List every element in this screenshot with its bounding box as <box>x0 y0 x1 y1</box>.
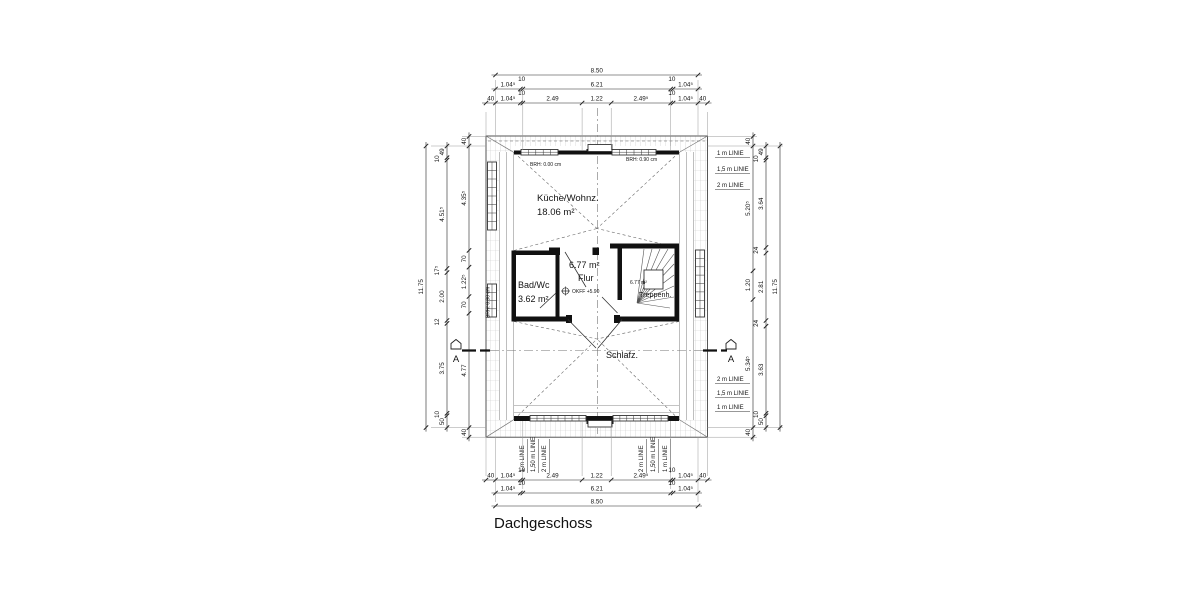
dim-value: 24 <box>753 319 760 327</box>
section-marker-right <box>726 340 736 350</box>
dim-value: 10 <box>668 467 676 474</box>
wall-stair-top <box>610 244 679 249</box>
dim-value: 4.35⁵ <box>461 190 468 205</box>
wall-pier <box>566 315 572 323</box>
dim-value: 10 <box>434 411 441 419</box>
dim-value: 10 <box>668 480 676 487</box>
room-name-flur: Flur <box>578 273 594 283</box>
wall-stair-left <box>618 248 623 300</box>
linie-label: 1,5 m LINIE <box>717 391 749 397</box>
dim-value: 8.50 <box>591 498 604 505</box>
room-area-flur: 6.77 m² <box>569 260 600 270</box>
dim-value: 40 <box>745 137 752 145</box>
wall-pier <box>614 315 620 323</box>
linie-label: 1,50 m LINIE <box>651 437 657 472</box>
dim-value: 5.20⁵ <box>745 201 752 216</box>
dim-value: 12 <box>434 318 441 326</box>
linie-label: 1,5 m LINIE <box>717 167 749 173</box>
linie-labels-bottom: 1 m LINIE 1,50 m LINIE 2 m LINIE 2 m LIN… <box>520 437 671 473</box>
dim-value: 50 <box>758 418 765 426</box>
dimension-chain: 11.75 <box>418 142 428 432</box>
dim-value: 40 <box>699 472 707 479</box>
dim-value: 10 <box>518 76 526 83</box>
section-marker-left <box>451 340 461 350</box>
dim-value: 40 <box>699 95 707 102</box>
dim-value: 1.04⁵ <box>501 81 516 88</box>
dim-value: 10 <box>753 155 760 163</box>
dim-value: 10 <box>518 90 526 97</box>
dim-value: 1.04⁵ <box>678 485 693 492</box>
dim-value: 11.75 <box>418 279 425 295</box>
dimension-chain: 404.35⁵701.22⁵704.7740 <box>461 132 471 441</box>
wall-bad-left <box>512 251 517 322</box>
dim-value: 1.04⁵ <box>678 472 693 479</box>
dimension-chain: 1.04⁵106.21101.04⁵ <box>492 480 703 495</box>
dim-value: 3.75 <box>439 362 446 375</box>
brh-label-side-window: BRH: 0.90 cm <box>486 287 492 318</box>
dim-value: 40 <box>461 137 468 145</box>
dimension-chain: 1.04⁵106.21101.04⁵ <box>492 76 703 91</box>
chimney-block <box>588 145 612 152</box>
dim-value: 70 <box>461 301 468 309</box>
wall-middle-bottom-right <box>620 317 679 322</box>
linie-label: 1 m LINIE <box>717 405 744 411</box>
dimension-chain: 11.75 <box>772 142 782 432</box>
dimension-chain: 401.04⁵102.491.222.49⁵101.04⁵40 <box>482 467 712 482</box>
dim-value: 5.34⁵ <box>745 356 752 371</box>
dim-value: 10 <box>518 480 526 487</box>
linie-label: 1,50 m LINIE <box>531 437 537 472</box>
bay-block <box>588 421 612 428</box>
dim-value: 70 <box>461 255 468 263</box>
linie-label: 2 m LINIE <box>639 445 645 472</box>
room-area-kueche: 18.06 m² <box>537 207 575 218</box>
dim-value: 11.75 <box>772 279 779 295</box>
dim-value: 1.04⁵ <box>501 472 516 479</box>
dim-value: 50 <box>439 418 446 426</box>
brh-label-left-window: BRH: 0.00 cm <box>530 162 561 168</box>
room-area-bad: 3.62 m² <box>518 294 549 304</box>
dim-value: 10 <box>518 467 526 474</box>
dimension-chain: 49103.64242.81243.631050 <box>753 142 768 432</box>
dim-value: 1.04⁵ <box>678 81 693 88</box>
dim-value: 4.51⁵ <box>439 206 446 221</box>
dim-value: 2.49⁵ <box>634 95 649 102</box>
dimension-chain: 401.04⁵102.491.222.49⁵101.04⁵40 <box>482 90 712 105</box>
dim-value: 4.77 <box>461 364 468 377</box>
dim-value: 3.64 <box>758 197 765 210</box>
wall-pier <box>549 248 560 256</box>
floor-plan-drawing: A A Küche/Wohnz. 18.06 m² 6.77 m² Flur B… <box>0 0 1200 600</box>
wall-bad-flur <box>556 255 560 317</box>
dim-value: 2.49 <box>546 472 559 479</box>
dim-value: 2.81 <box>758 280 765 293</box>
dim-value: 6.21 <box>591 485 604 492</box>
section-label-left: A <box>453 354 460 365</box>
dim-value: 1.20 <box>745 279 752 292</box>
linie-label: 1 m LINIE <box>717 151 744 157</box>
dim-value: 49 <box>758 148 765 156</box>
dim-value: 2.00 <box>439 290 446 303</box>
dim-value: 1.22 <box>591 95 604 102</box>
dim-value: 40 <box>487 472 495 479</box>
dim-value: 40 <box>745 428 752 436</box>
dim-value: 10 <box>668 90 676 97</box>
section-label-right: A <box>728 354 735 365</box>
dim-value: 40 <box>487 95 495 102</box>
linie-label: 2 m LINIE <box>717 377 744 383</box>
dim-value: 40 <box>461 428 468 436</box>
dim-value: 10 <box>753 411 760 419</box>
room-name-bad: Bad/Wc <box>518 280 550 290</box>
dim-value: 1.22⁵ <box>461 274 468 289</box>
dim-value: 1.22 <box>591 472 604 479</box>
brh-label-right-window: BRH: 0.90 cm <box>626 157 657 163</box>
linie-label: 2 m LINIE <box>542 445 548 472</box>
dim-value: 49 <box>439 148 446 156</box>
dim-value: 10 <box>434 155 441 163</box>
dim-value: 2.49 <box>546 95 559 102</box>
dim-value: 8.50 <box>591 67 604 74</box>
dim-value: 17⁵ <box>434 265 441 275</box>
dimension-chain: 8.50 <box>492 498 703 508</box>
wall-middle-bottom-left <box>512 317 567 322</box>
dim-value: 24 <box>753 246 760 254</box>
room-name-schlafzimmer: Schlafz. <box>606 350 638 360</box>
dimension-chain: 49104.51⁵17⁵2.00123.751050 <box>434 142 449 432</box>
drawing-title: Dachgeschoss <box>494 515 592 532</box>
room-name-kueche: Küche/Wohnz. <box>537 193 599 204</box>
dim-value: 3.63 <box>758 363 765 376</box>
wall-pier <box>593 248 600 256</box>
room-name-treppenhaus: Treppenh. <box>639 290 672 299</box>
dim-value: 10 <box>668 76 676 83</box>
dim-value: 2.49⁵ <box>634 472 649 479</box>
dim-value: 1.04⁵ <box>678 95 693 102</box>
wall-stair-right <box>675 244 680 322</box>
dim-value: 1.04⁵ <box>501 95 516 102</box>
room-area-treppenhaus: 6.77 m² <box>630 280 647 286</box>
dim-value: 6.21 <box>591 81 604 88</box>
linie-label: 2 m LINIE <box>717 183 744 189</box>
dim-value: 1.04⁵ <box>501 485 516 492</box>
okff-label: OKFF +5.90 <box>572 289 600 295</box>
floor-plan-sheet: A A Küche/Wohnz. 18.06 m² 6.77 m² Flur B… <box>0 0 1200 600</box>
